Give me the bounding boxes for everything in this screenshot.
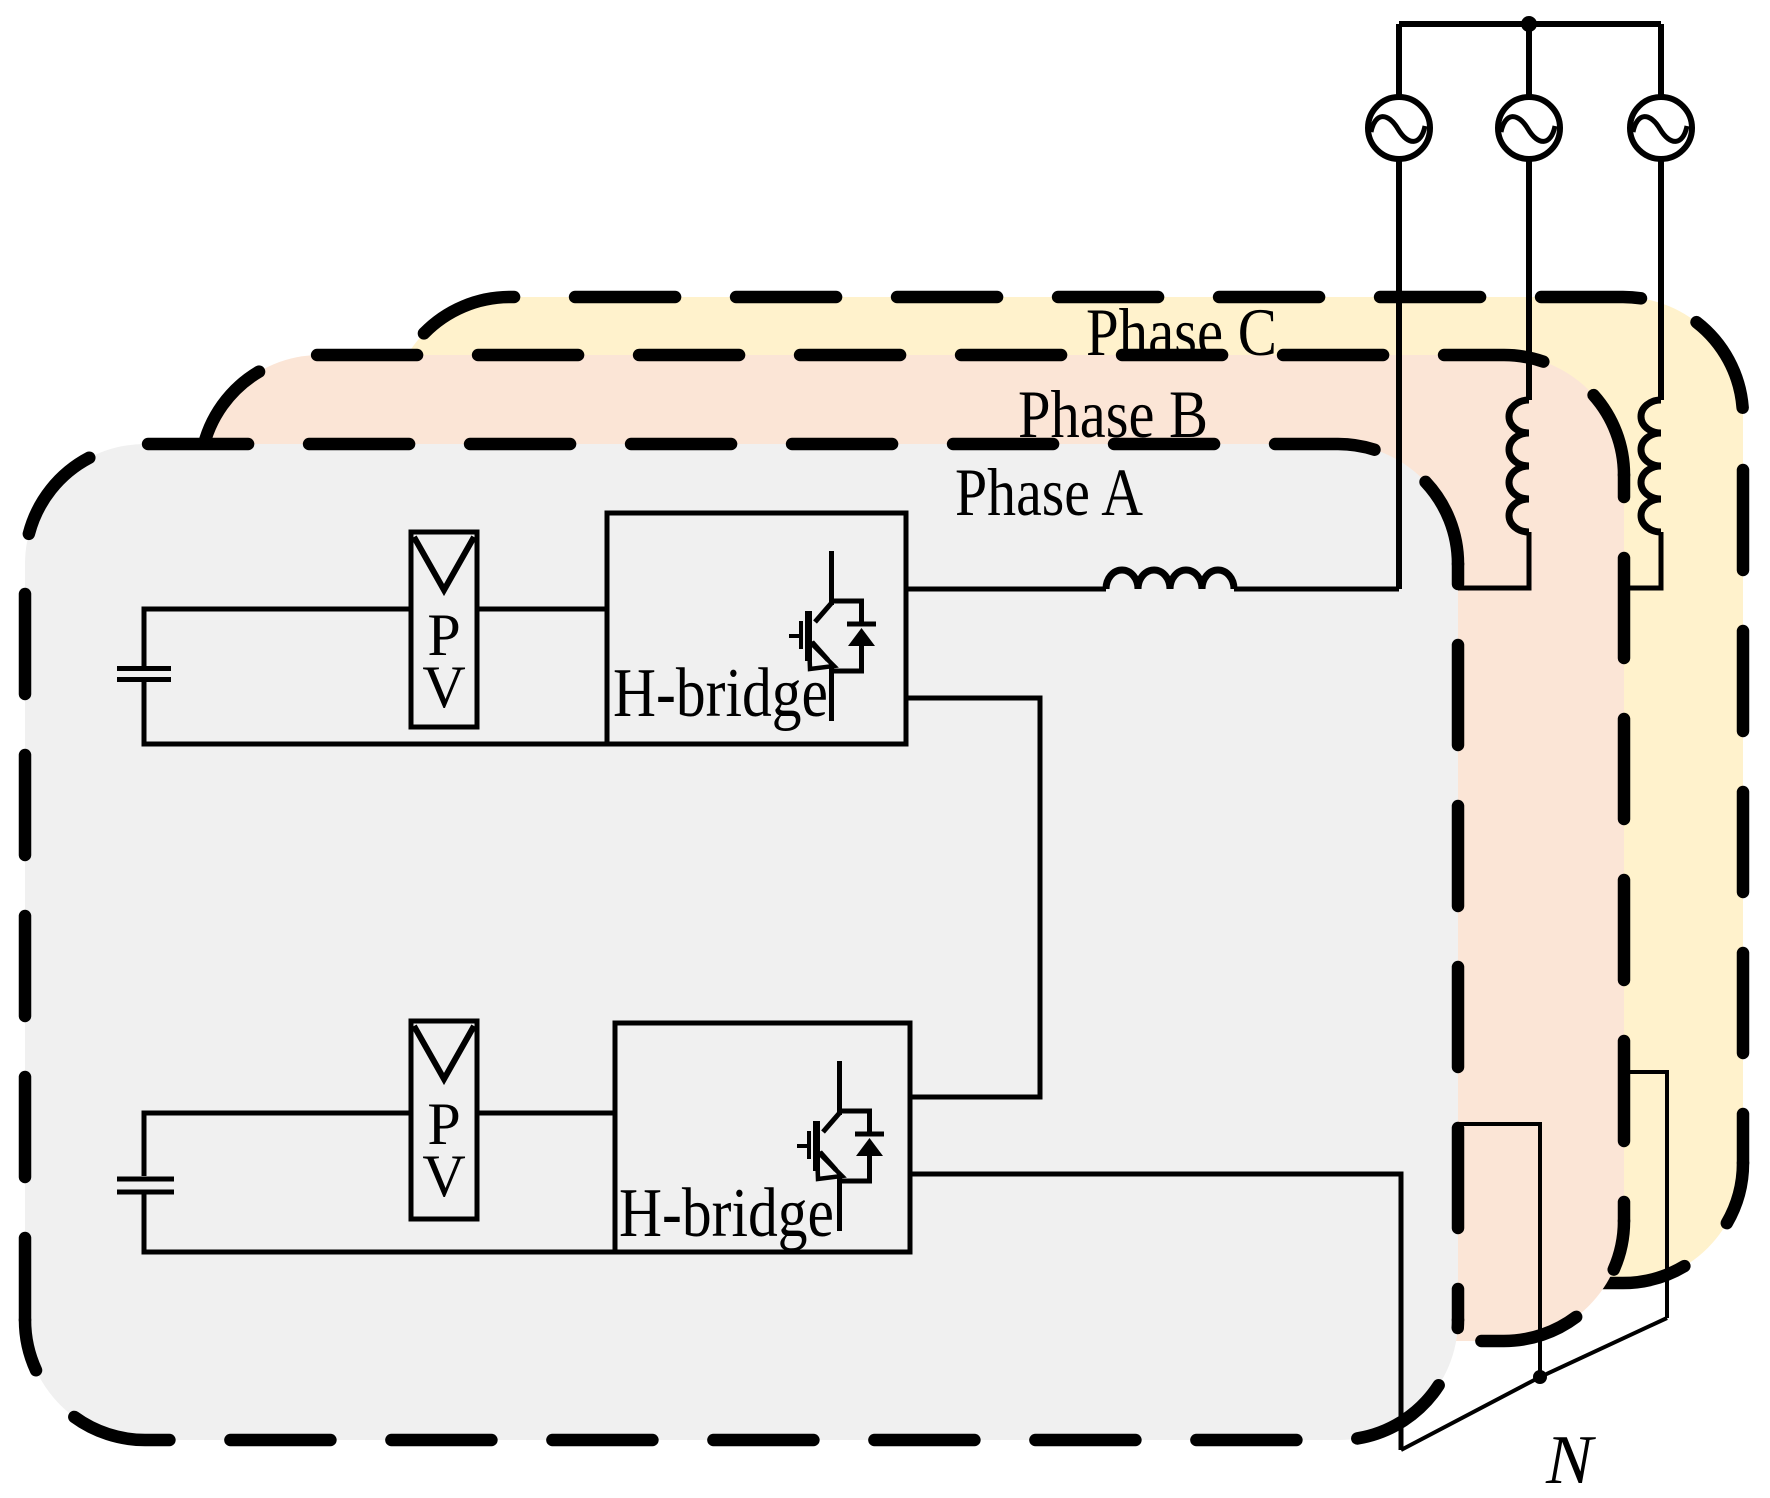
svg-text:Phase A: Phase A: [955, 454, 1143, 530]
svg-text:V: V: [422, 654, 465, 720]
svg-text:N: N: [1545, 1422, 1596, 1498]
svg-text:Phase B: Phase B: [1018, 376, 1208, 452]
svg-text:Phase C: Phase C: [1086, 294, 1277, 370]
svg-text:H-bridge: H-bridge: [619, 1175, 834, 1252]
svg-text:V: V: [422, 1143, 465, 1209]
svg-text:H-bridge: H-bridge: [613, 655, 828, 732]
